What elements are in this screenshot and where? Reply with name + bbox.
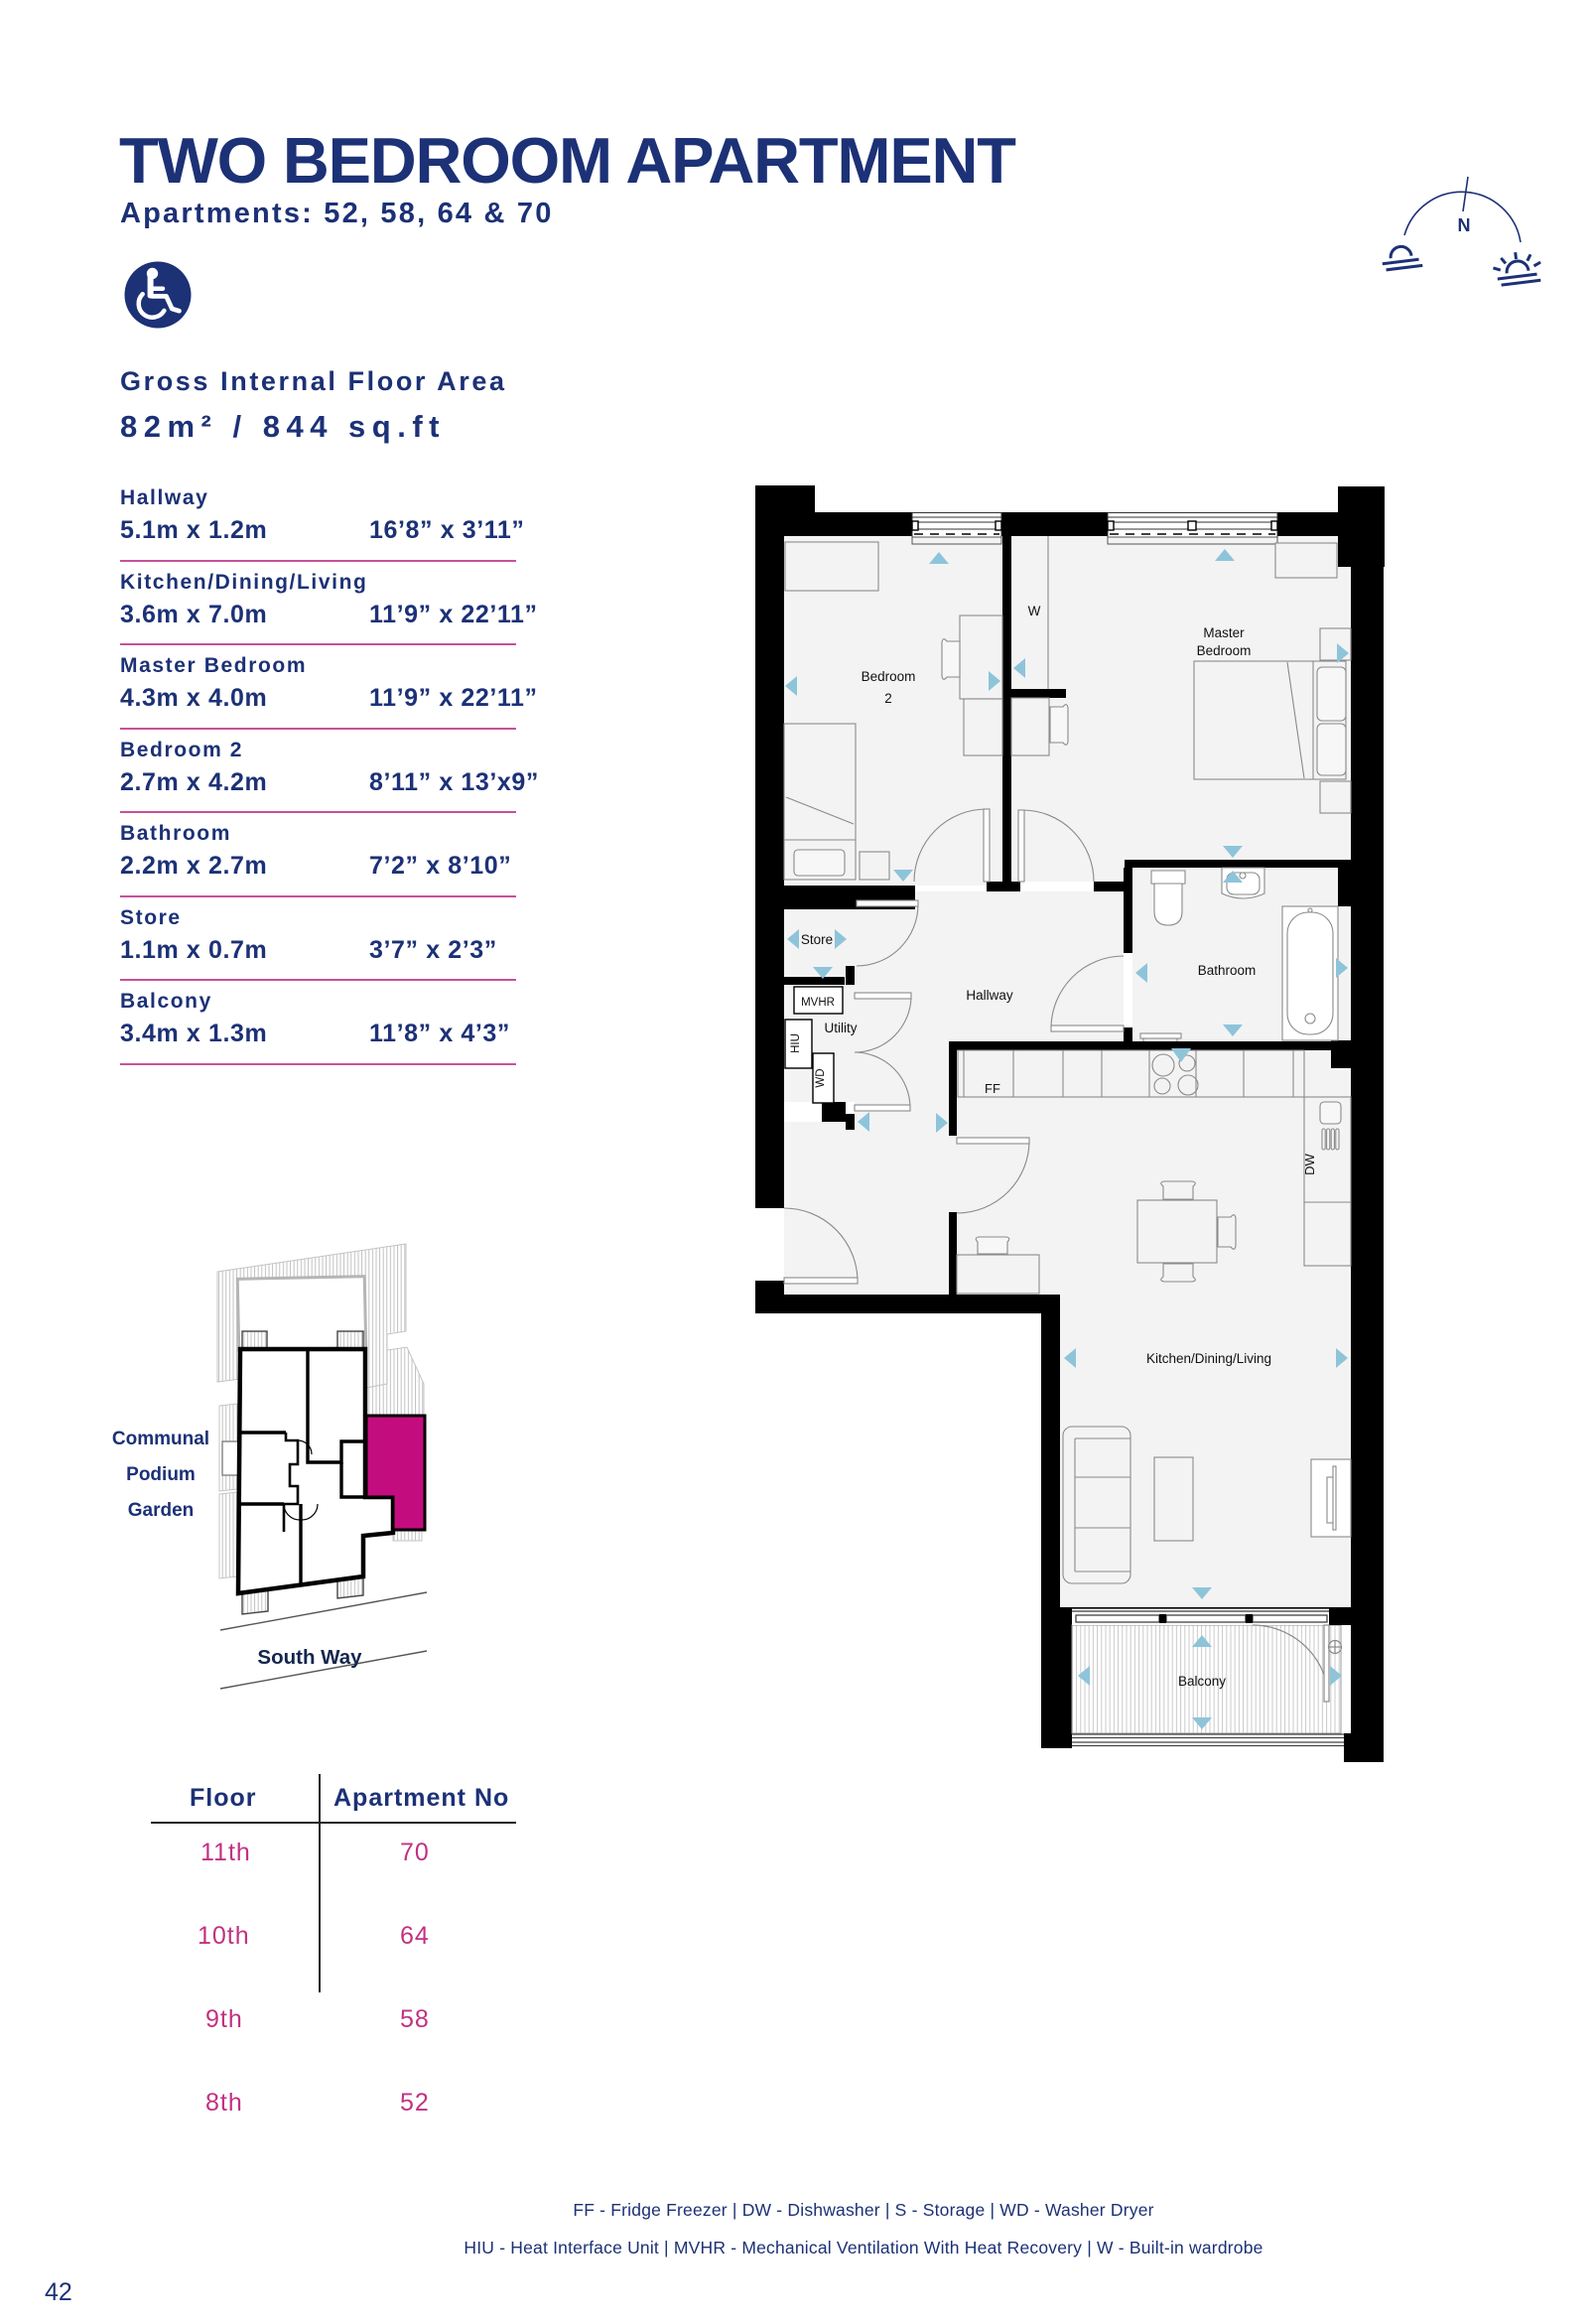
svg-text:2: 2 — [884, 691, 892, 706]
svg-text:South Way: South Way — [257, 1646, 362, 1669]
svg-text:Podium: Podium — [126, 1464, 196, 1485]
svg-text:HIU: HIU — [790, 1033, 802, 1053]
svg-text:Hallway: Hallway — [966, 988, 1013, 1003]
svg-text:Master: Master — [1203, 625, 1245, 640]
svg-text:DW: DW — [1302, 1153, 1317, 1174]
svg-text:Store: Store — [801, 932, 833, 947]
svg-text:Utility: Utility — [825, 1021, 858, 1035]
svg-text:W: W — [1028, 604, 1041, 618]
svg-text:Communal: Communal — [112, 1429, 209, 1449]
svg-text:Garden: Garden — [128, 1500, 195, 1521]
svg-text:Bathroom: Bathroom — [1198, 963, 1257, 978]
svg-text:WD: WD — [815, 1068, 827, 1087]
svg-text:Balcony: Balcony — [1178, 1674, 1226, 1689]
svg-text:Kitchen/Dining/Living: Kitchen/Dining/Living — [1146, 1351, 1271, 1366]
svg-text:Bedroom: Bedroom — [862, 669, 916, 684]
svg-text:N: N — [1458, 215, 1471, 235]
svg-text:MVHR: MVHR — [801, 997, 835, 1009]
svg-text:FF: FF — [985, 1081, 1000, 1096]
svg-text:Bedroom: Bedroom — [1197, 643, 1252, 658]
